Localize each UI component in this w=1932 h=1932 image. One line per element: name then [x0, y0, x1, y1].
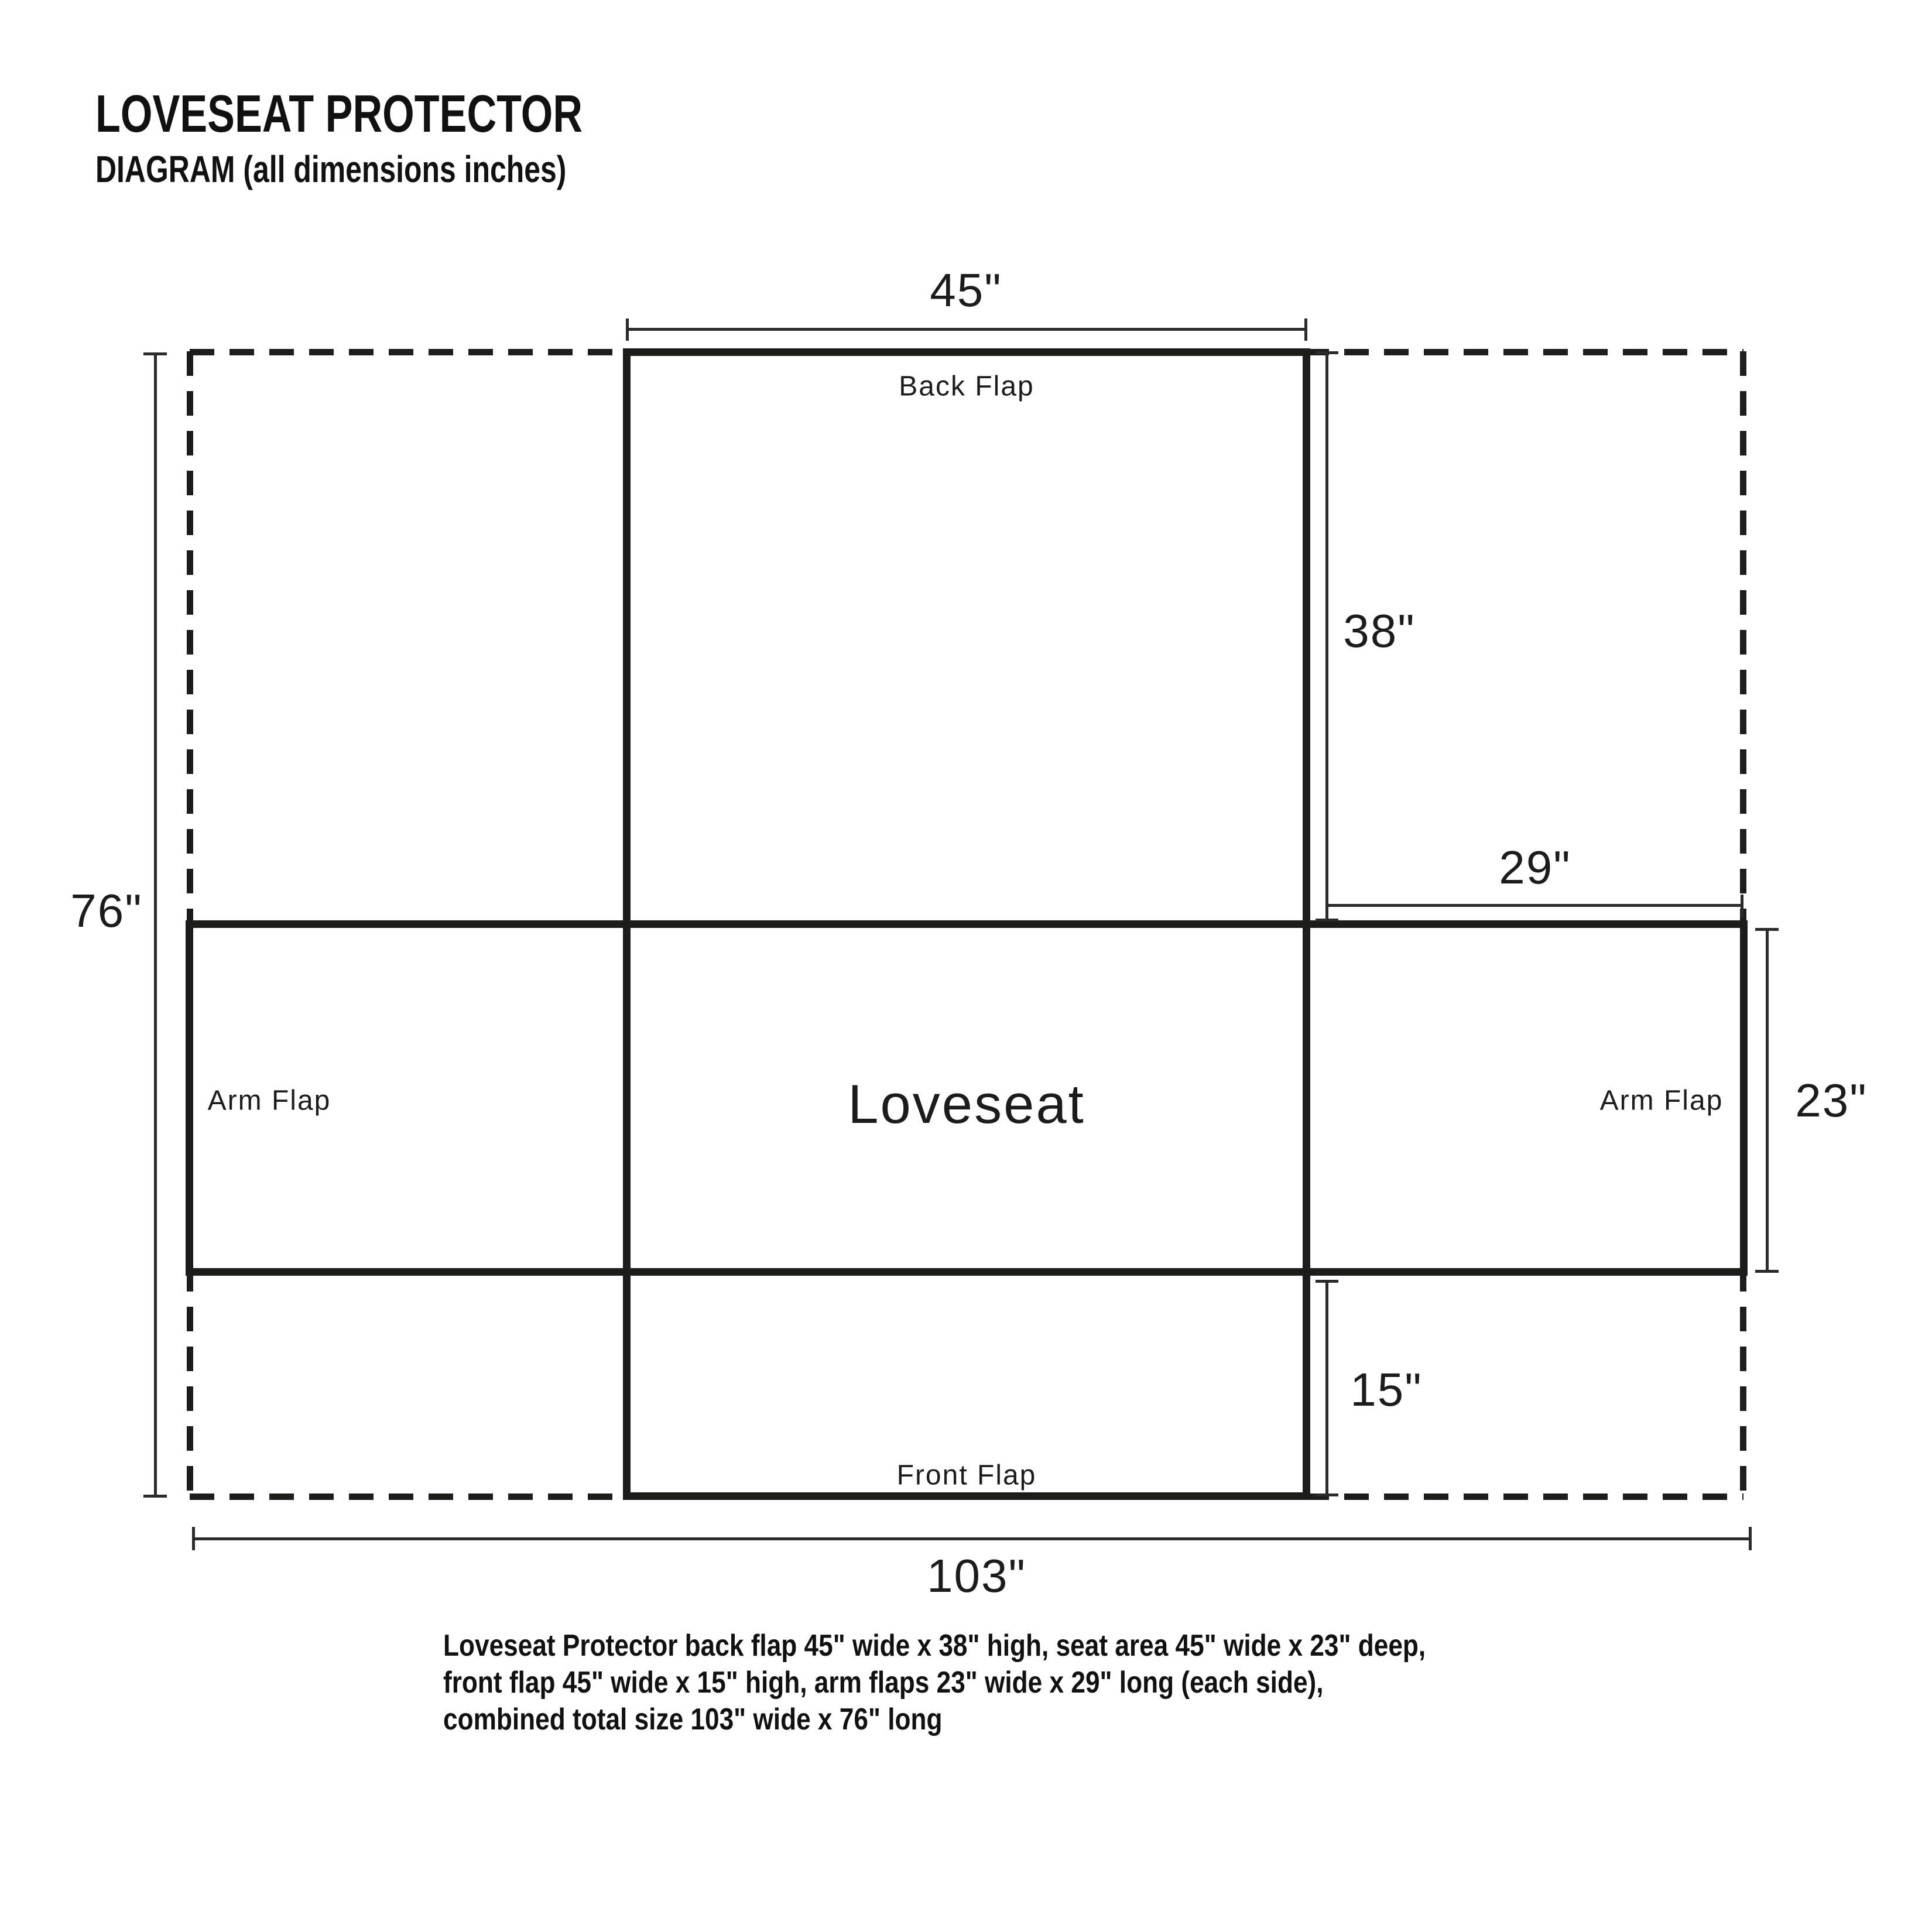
dim-15-label: 15": [1350, 1363, 1422, 1417]
dim-15-line: [1325, 1281, 1328, 1496]
front-flap-bottom-edge: [623, 1492, 1310, 1500]
dim-103-line: [193, 1537, 1751, 1540]
arm-flap-right-label: Arm Flap: [1600, 1085, 1724, 1117]
page: LOVESEAT PROTECTOR DIAGRAM (all dimensio…: [0, 0, 1932, 1932]
loveseat-label: Loveseat: [848, 1073, 1085, 1136]
right-arm-flap-right-edge: [1740, 920, 1748, 1276]
center-column-right-edge: [1303, 348, 1310, 1500]
caption-line-1: Loveseat Protector back flap 45" wide x …: [443, 1628, 1426, 1664]
back-flap-top-edge: [623, 348, 1310, 356]
dim-76-top-tick: [143, 352, 167, 355]
dim-103-label: 103": [927, 1549, 1026, 1603]
caption-line-2: front flap 45" wide x 15" high, arm flap…: [443, 1664, 1426, 1701]
dim-38-line: [1325, 352, 1328, 922]
dim-23-bottom-tick: [1755, 1270, 1779, 1273]
back-flap-label: Back Flap: [899, 371, 1034, 403]
dim-76-label: 76": [70, 884, 142, 938]
dim-15-bottom-tick: [1316, 1493, 1338, 1496]
center-column-left-edge: [623, 348, 631, 1500]
dim-45-right-tick: [1304, 318, 1307, 341]
arm-flap-left-label: Arm Flap: [208, 1085, 331, 1117]
caption-line-3: combined total size 103" wide x 76" long: [443, 1701, 1426, 1738]
dim-45-label: 45": [930, 263, 1002, 317]
dim-29-label: 29": [1499, 841, 1571, 895]
dim-38-bottom-tick: [1316, 919, 1338, 922]
dim-29-line: [1327, 904, 1743, 907]
dim-38-top-tick: [1316, 351, 1338, 354]
page-subtitle: DIAGRAM (all dimensions inches): [95, 148, 566, 191]
dim-15-top-tick: [1316, 1280, 1338, 1283]
dim-76-bottom-tick: [143, 1495, 167, 1498]
panel-row-bottom-edge: [186, 1268, 1748, 1276]
front-flap-label: Front Flap: [897, 1460, 1037, 1492]
dim-23-top-tick: [1755, 928, 1779, 931]
dim-29-right-tick: [1741, 895, 1743, 917]
caption: Loveseat Protector back flap 45" wide x …: [443, 1628, 1426, 1738]
panel-row-top-edge: [186, 920, 1748, 928]
dim-38-label: 38": [1343, 604, 1415, 658]
dim-45-left-tick: [626, 318, 629, 341]
left-arm-flap-left-edge: [186, 920, 193, 1276]
dim-45-line: [627, 328, 1306, 331]
dim-23-line: [1766, 929, 1769, 1272]
dim-103-left-tick: [192, 1527, 195, 1550]
dim-23-label: 23": [1795, 1074, 1867, 1128]
dim-29-left-tick: [1325, 895, 1328, 917]
page-title: LOVESEAT PROTECTOR: [95, 87, 583, 142]
dim-103-right-tick: [1749, 1527, 1752, 1550]
dim-76-line: [154, 354, 157, 1498]
